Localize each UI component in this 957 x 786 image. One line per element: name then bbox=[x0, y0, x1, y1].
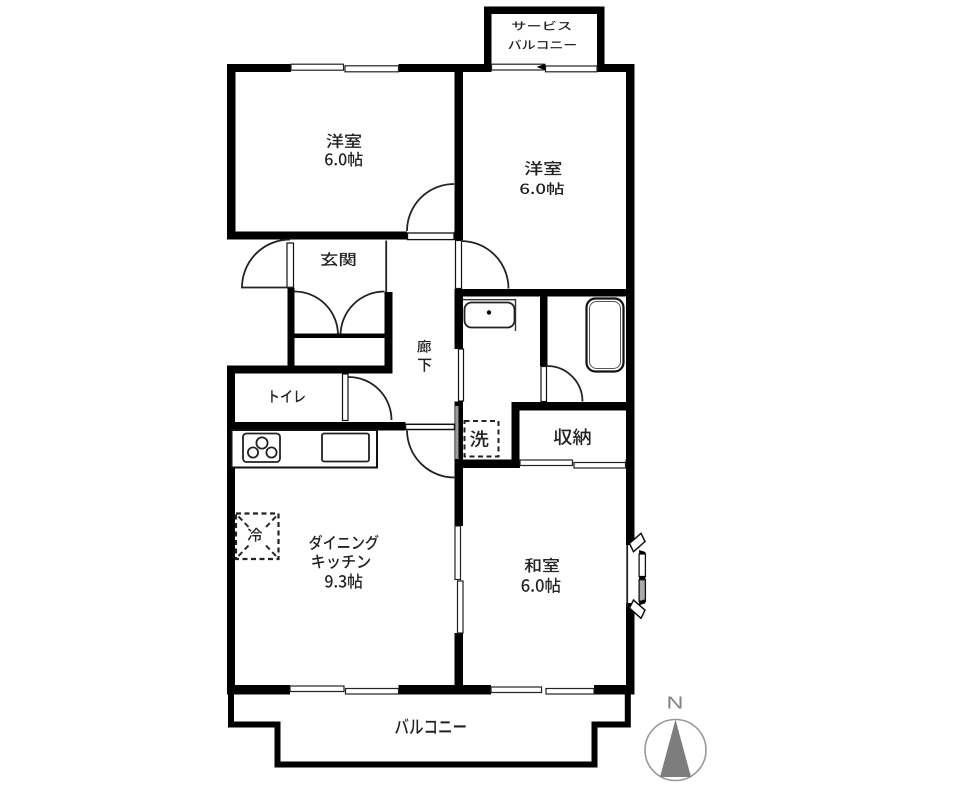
svg-text:N: N bbox=[667, 693, 684, 713]
